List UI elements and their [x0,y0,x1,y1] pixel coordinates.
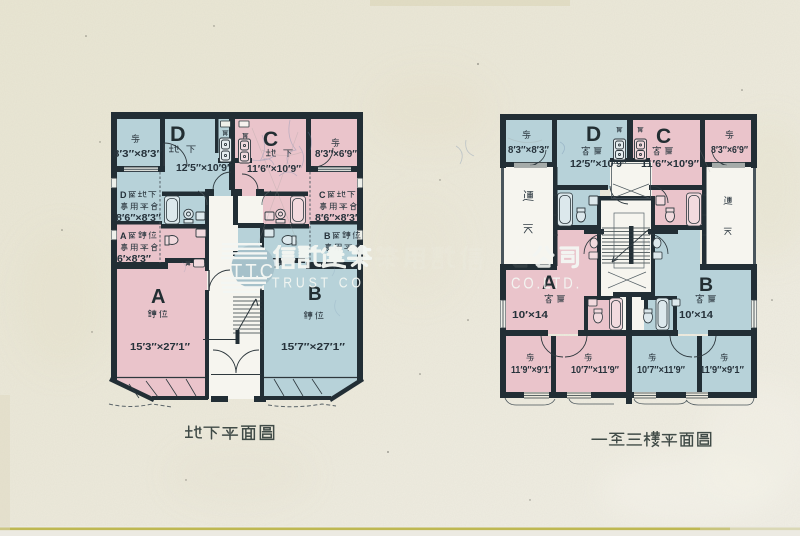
svg-text:11′9″×9′1″: 11′9″×9′1″ [700,365,744,376]
svg-text:D: D [120,190,127,200]
svg-text:8′3″×6′9″: 8′3″×6′9″ [711,145,748,156]
svg-text:8′3″×8′3″: 8′3″×8′3″ [113,149,162,160]
svg-text:11′6″×10′9″: 11′6″×10′9″ [641,159,699,170]
svg-text:12′5″×10′9″: 12′5″×10′9″ [570,159,627,170]
svg-text:B: B [324,231,331,241]
svg-text:TRUST CO: TRUST CO [272,274,365,290]
svg-text:CO.LTD.: CO.LTD. [511,276,582,293]
svg-text:C: C [656,125,671,148]
svg-text:A: A [151,286,165,308]
svg-text:8′6″×8′3″: 8′6″×8′3″ [315,213,360,224]
svg-text:12′5″×10′9″: 12′5″×10′9″ [176,163,232,174]
svg-text:10′×14: 10′×14 [512,310,549,321]
svg-text:8′6″×8′3″: 8′6″×8′3″ [116,213,161,224]
svg-text:D: D [170,122,186,146]
svg-text:C: C [263,128,278,151]
svg-text:15′7″×27′1″: 15′7″×27′1″ [281,342,345,353]
svg-text:A: A [120,231,127,241]
svg-text:10′×14: 10′×14 [679,310,713,321]
svg-text:10′7″×11′9″: 10′7″×11′9″ [637,365,685,376]
svg-text:8′3″×8′3″: 8′3″×8′3″ [508,145,549,156]
svg-text:C: C [319,190,326,200]
svg-text:D: D [586,123,601,146]
svg-text:B: B [699,274,713,296]
svg-text:T.T.C: T.T.C [231,260,273,283]
svg-text:10′7″×11′9″: 10′7″×11′9″ [571,365,619,376]
svg-text:6′×8′3″: 6′×8′3″ [117,254,151,265]
svg-text:8′3″×6′9″: 8′3″×6′9″ [315,149,357,160]
svg-text:11′9″×9′1″: 11′9″×9′1″ [511,365,553,376]
svg-text:15′3″×27′1″: 15′3″×27′1″ [130,342,190,353]
